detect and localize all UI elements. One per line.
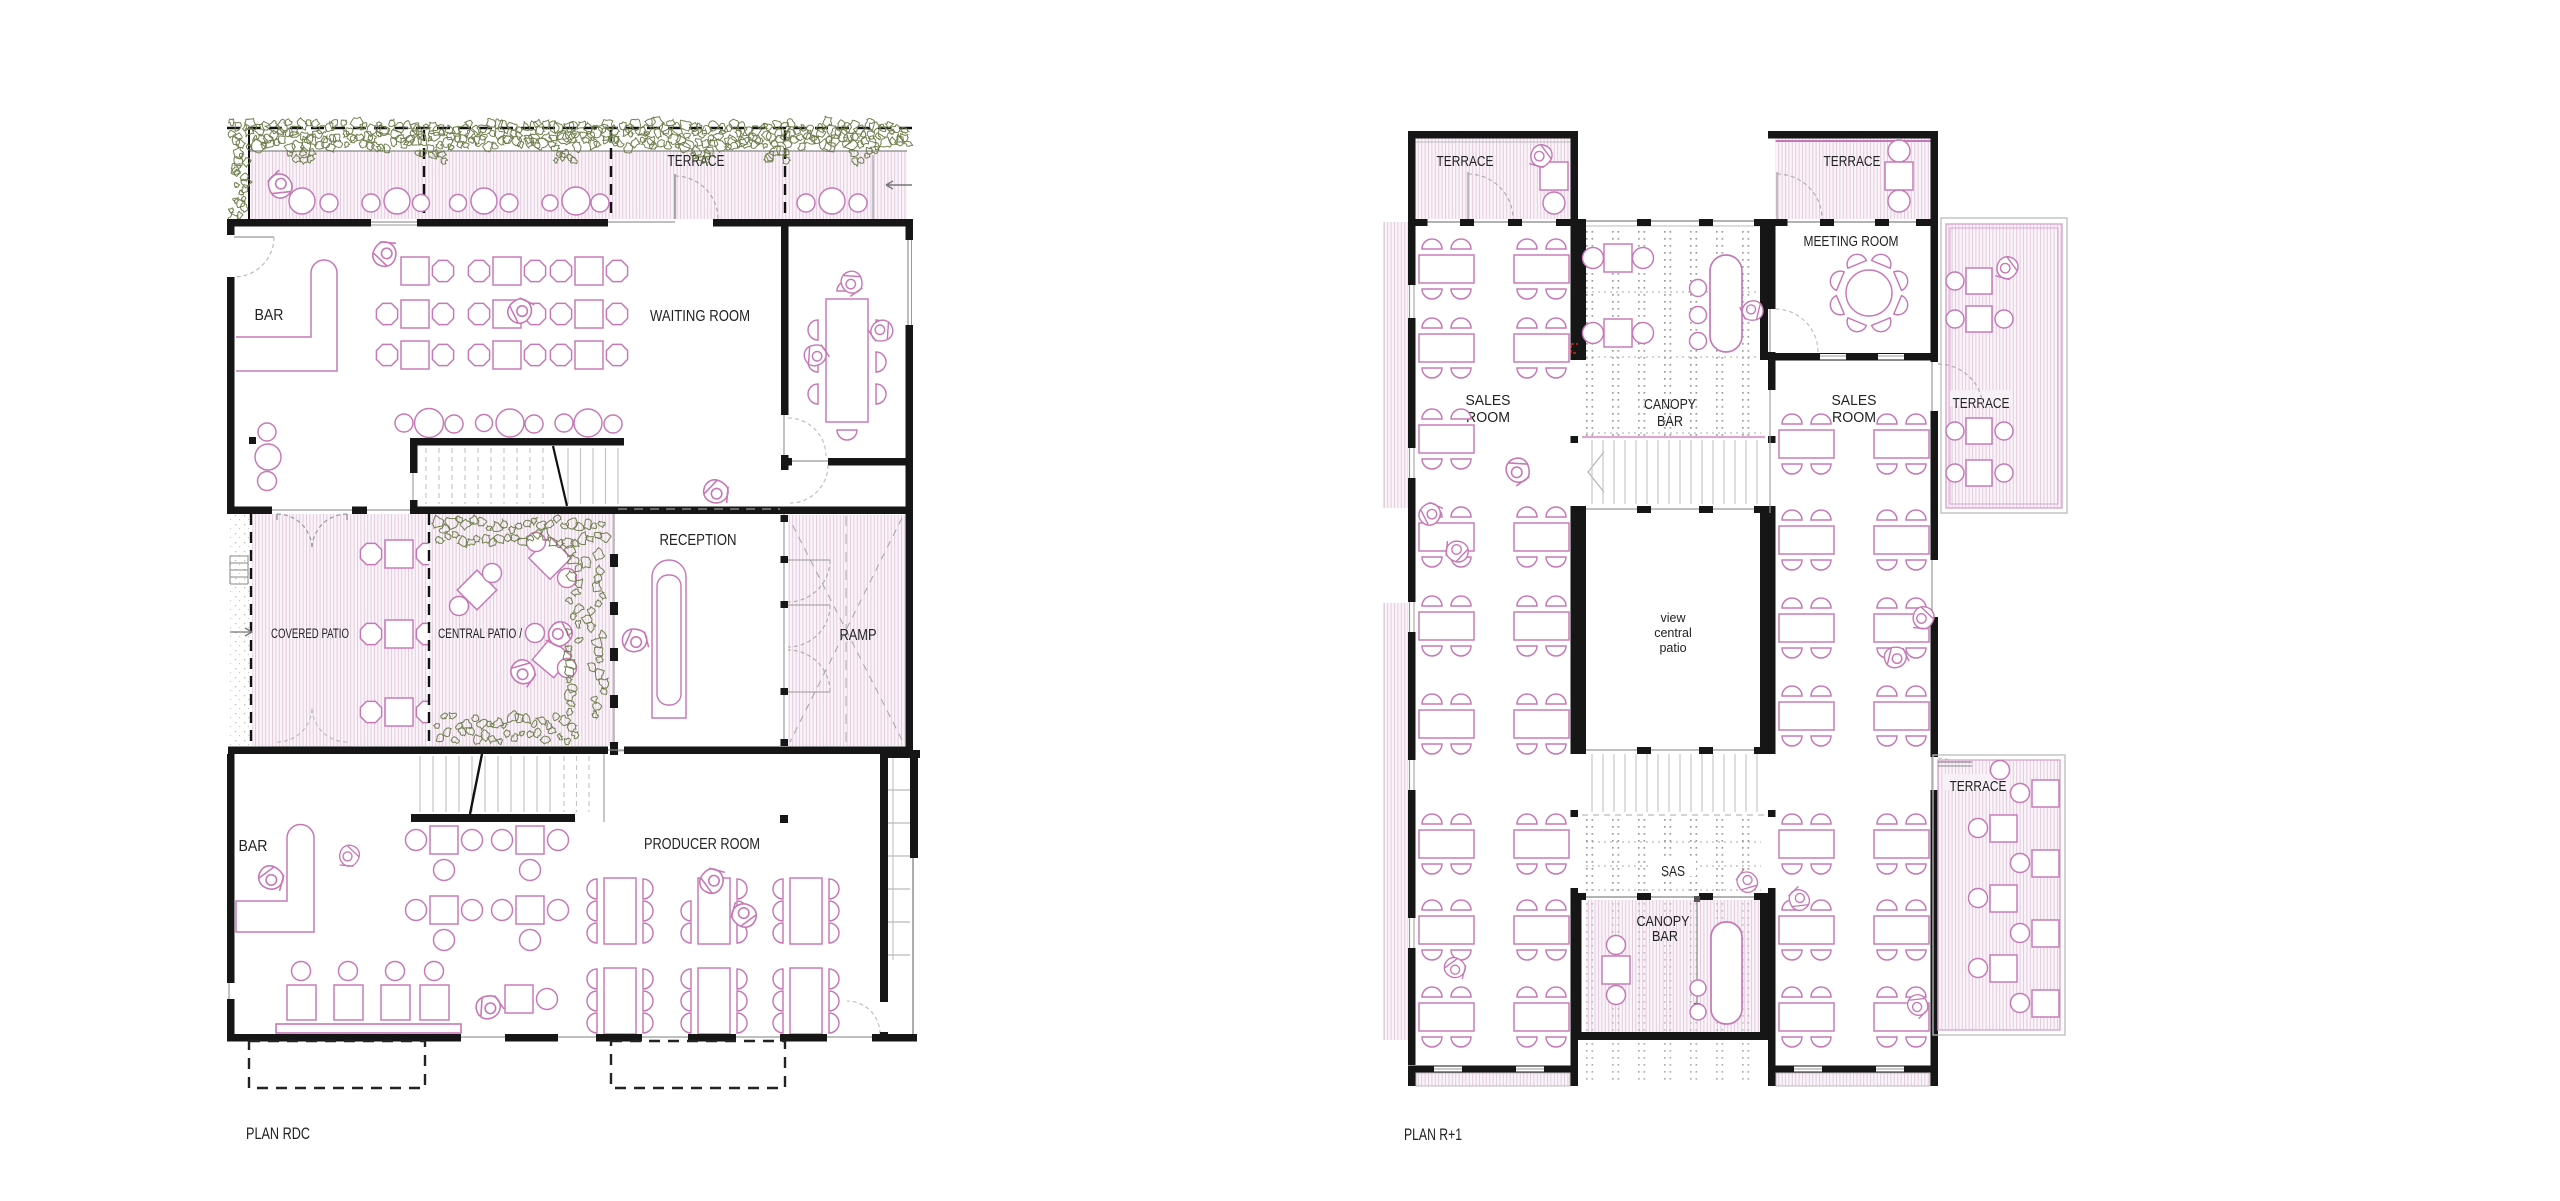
svg-text:CANOPY: CANOPY [1644, 396, 1696, 413]
svg-text:COVERED PATIO: COVERED PATIO [271, 626, 349, 641]
svg-text:PLAN RDC: PLAN RDC [246, 1125, 310, 1143]
svg-text:BAR: BAR [255, 307, 284, 324]
svg-text:SALES: SALES [1832, 392, 1877, 409]
svg-text:TERRACE: TERRACE [1824, 153, 1881, 170]
svg-text:ROOM: ROOM [1466, 409, 1510, 426]
svg-text:BAR: BAR [1652, 928, 1678, 945]
svg-text:ROOM: ROOM [1832, 409, 1876, 426]
svg-text:SAS: SAS [1661, 863, 1685, 880]
svg-text:RAMP: RAMP [840, 627, 877, 644]
svg-text:BAR: BAR [1657, 413, 1683, 430]
svg-text:view: view [1660, 611, 1686, 625]
svg-text:RECEPTION: RECEPTION [660, 532, 737, 549]
svg-text:PRODUCER ROOM: PRODUCER ROOM [644, 836, 760, 853]
svg-text:PLAN R+1: PLAN R+1 [1404, 1126, 1462, 1144]
svg-text:MEETING ROOM: MEETING ROOM [1804, 233, 1899, 250]
svg-text:TERRACE: TERRACE [1950, 778, 2007, 795]
svg-text:TERRACE: TERRACE [1437, 153, 1494, 170]
svg-text:SALES: SALES [1466, 392, 1511, 409]
svg-text:patio: patio [1659, 641, 1686, 655]
svg-text:WAITING ROOM: WAITING ROOM [650, 308, 750, 325]
svg-text:central: central [1654, 626, 1692, 640]
svg-text:BAR: BAR [239, 838, 268, 855]
svg-text:CENTRAL PATIO /: CENTRAL PATIO / [438, 626, 522, 641]
